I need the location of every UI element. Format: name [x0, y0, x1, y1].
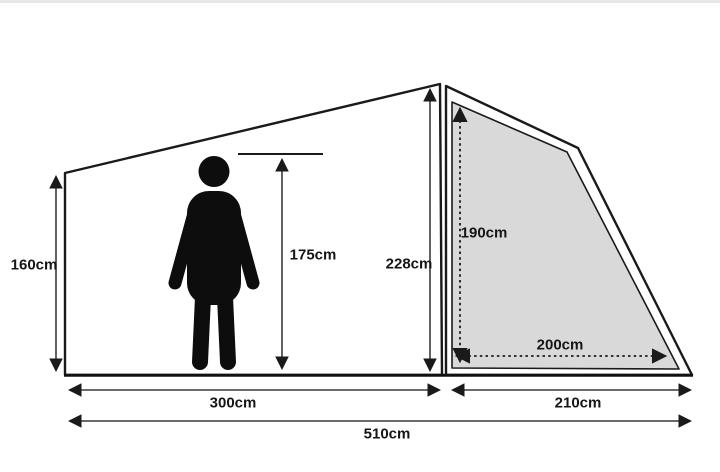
label-person-height: 175cm — [290, 248, 337, 263]
person-leg-right — [225, 297, 228, 362]
label-peak-height: 228cm — [386, 257, 433, 272]
label-left-wall-height: 160cm — [11, 258, 58, 273]
diagram-canvas — [0, 0, 720, 472]
label-panel-width: 200cm — [537, 338, 584, 353]
person-head — [199, 156, 230, 187]
person-leg-left — [200, 297, 203, 362]
tent-dimension-diagram: 160cm 175cm 228cm 190cm 200cm 300cm 210c… — [0, 0, 720, 472]
label-main-section-length: 300cm — [210, 396, 257, 411]
tent-front-face — [65, 84, 442, 375]
label-panel-height: 190cm — [461, 226, 508, 241]
label-porch-section-length: 210cm — [555, 396, 602, 411]
label-total-length: 510cm — [364, 427, 411, 442]
